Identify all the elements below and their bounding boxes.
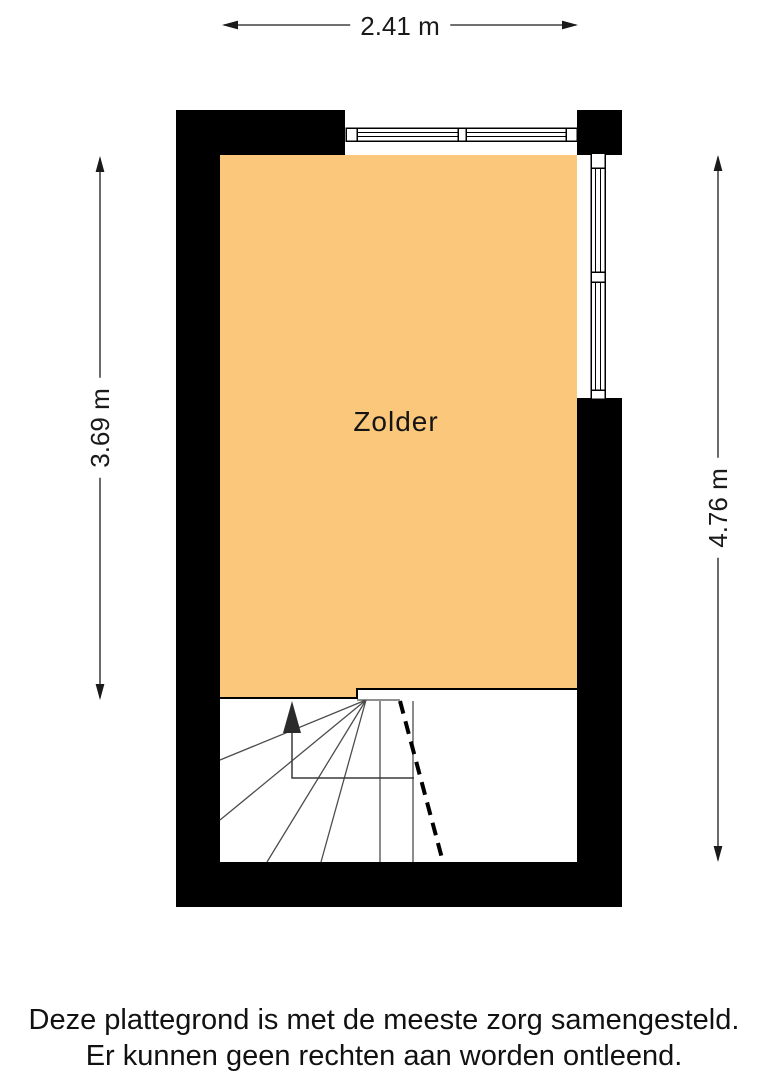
dimension-label-width: 2.41 m	[350, 11, 450, 41]
dimension-label-height-right: 4.76 m	[703, 458, 733, 558]
headroom-dashed-line	[400, 701, 443, 862]
stair-up-arrow-icon	[283, 701, 301, 733]
wall-bottom	[176, 862, 622, 907]
staircase	[220, 700, 443, 862]
wall-top	[176, 110, 345, 155]
stair-walk-line	[292, 732, 414, 778]
arrowhead-up-icon	[96, 156, 105, 172]
window-right-frame	[591, 153, 605, 399]
room-label-zolder: Zolder	[353, 406, 438, 438]
window-top	[346, 128, 577, 141]
arrowhead-up-icon	[714, 155, 723, 171]
wall-left	[176, 110, 220, 907]
disclaimer-line-2: Er kunnen geen rechten aan worden ontlee…	[0, 1038, 768, 1074]
window-top-frame	[346, 128, 577, 141]
arrowhead-down-icon	[714, 846, 723, 862]
wall-right	[577, 398, 622, 907]
window-right	[591, 153, 605, 399]
disclaimer-line-1: Deze plattegrond is met de meeste zorg s…	[0, 1002, 768, 1038]
stair-tread-lines	[220, 700, 413, 862]
wall-corner-top-right	[577, 110, 622, 155]
disclaimer: Deze plattegrond is met de meeste zorg s…	[0, 1002, 768, 1074]
floorplan-drawing	[0, 0, 768, 1086]
floorplan-canvas: 2.41 m 3.69 m 4.76 m Zolder Deze platteg…	[0, 0, 768, 1086]
dimension-label-height-left: 3.69 m	[85, 378, 115, 478]
arrowhead-right-icon	[562, 21, 578, 30]
arrowhead-down-icon	[96, 684, 105, 700]
arrowhead-left-icon	[222, 21, 238, 30]
